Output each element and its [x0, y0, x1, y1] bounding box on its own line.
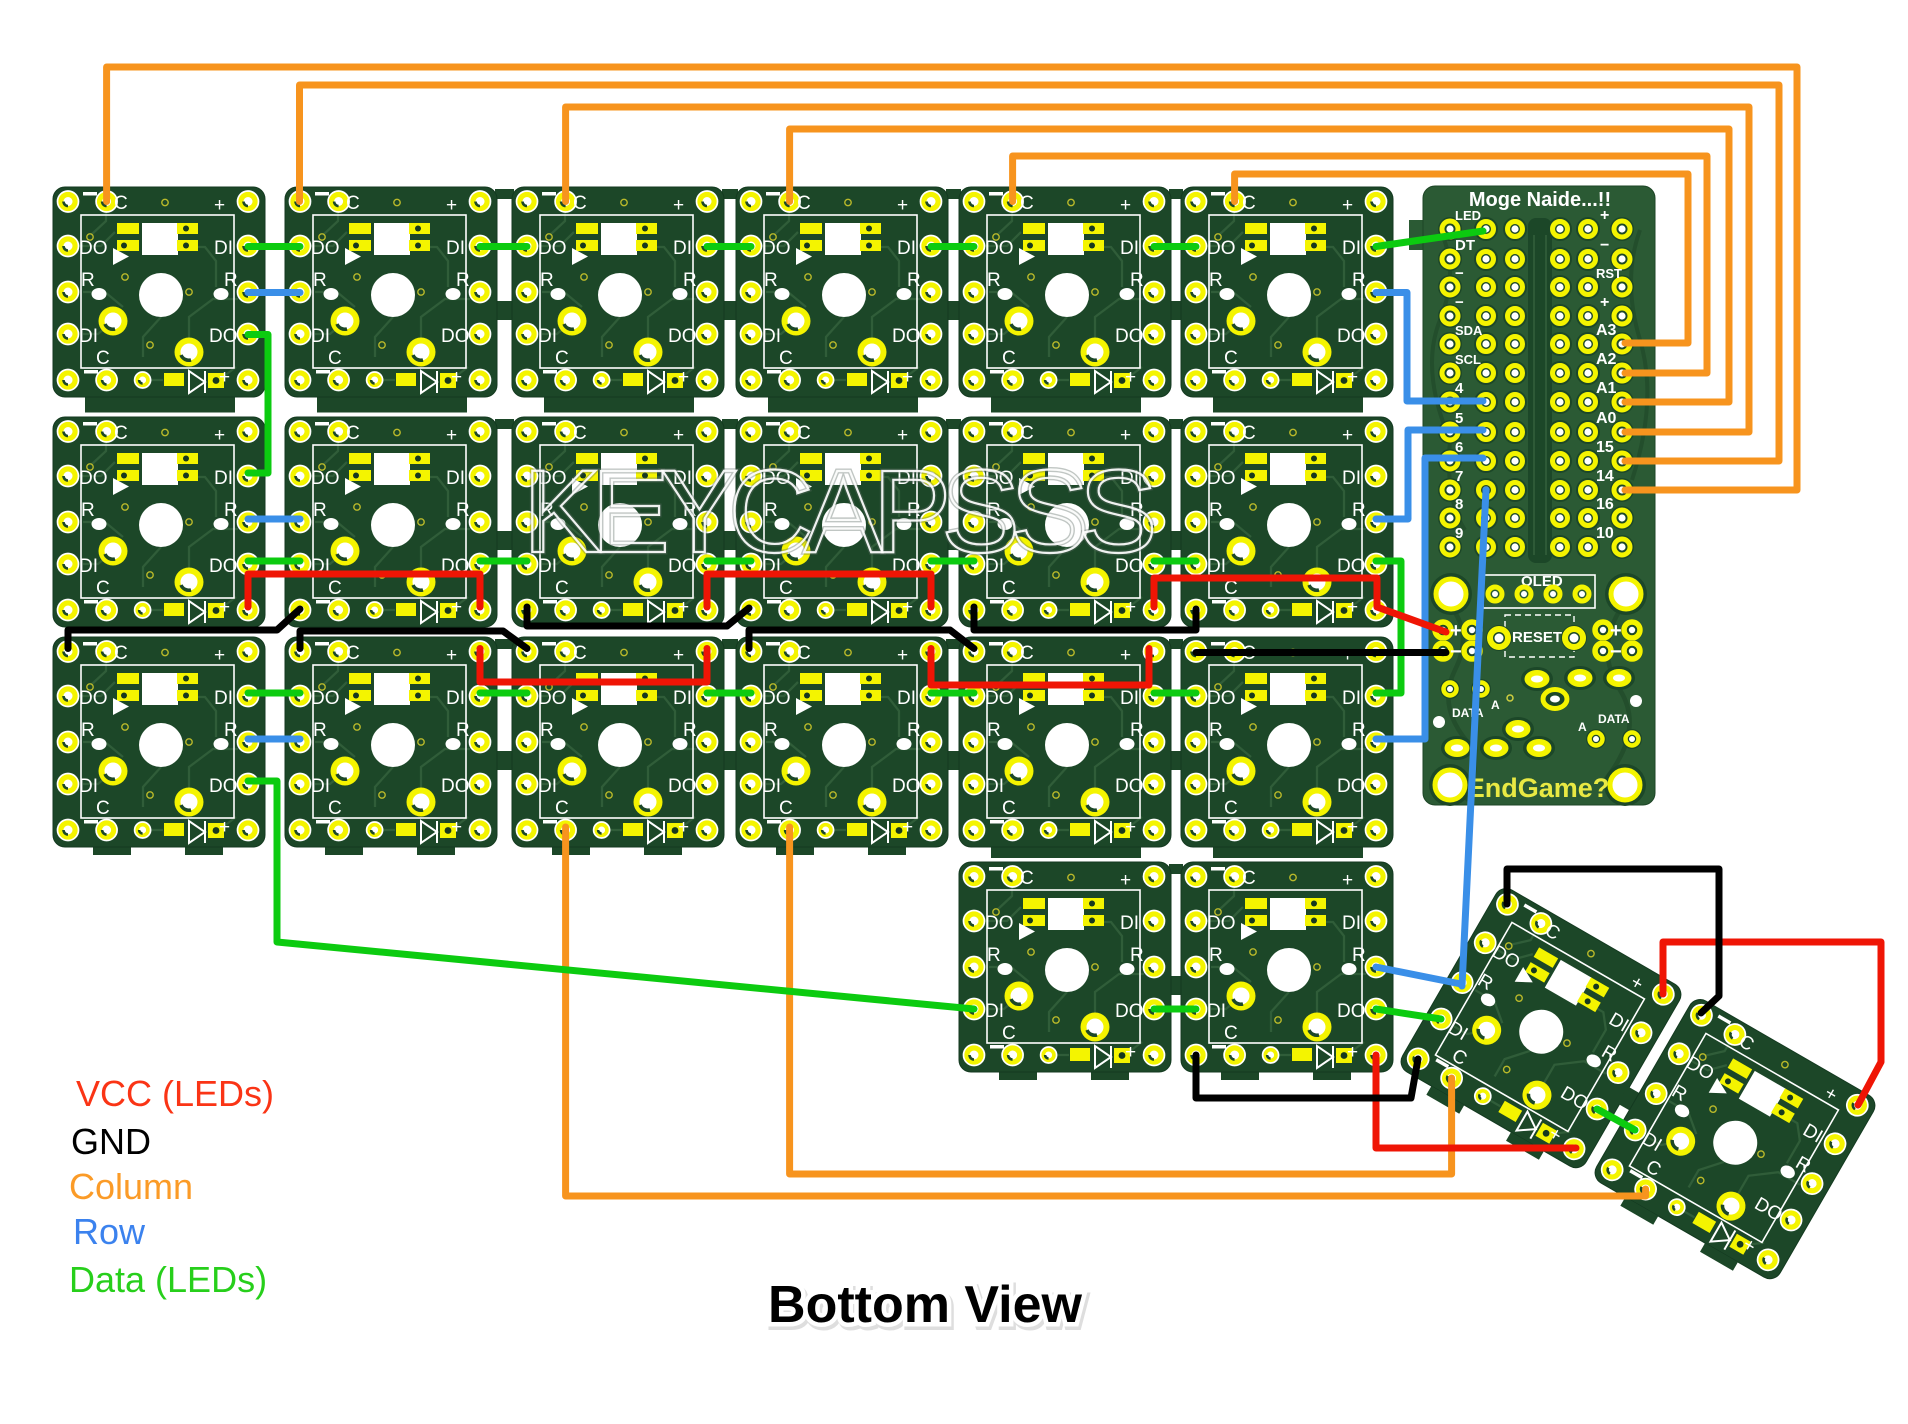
- svg-text:7: 7: [1455, 468, 1463, 485]
- svg-text:DATA: DATA: [1598, 712, 1630, 726]
- svg-text:10: 10: [1596, 525, 1614, 542]
- svg-text:Data (LEDs): Data (LEDs): [69, 1259, 267, 1300]
- svg-text:A2: A2: [1596, 351, 1617, 368]
- svg-text:8: 8: [1455, 496, 1463, 513]
- svg-text:A: A: [1491, 698, 1500, 712]
- svg-text:DATA: DATA: [1452, 706, 1484, 720]
- svg-text:SDA: SDA: [1455, 323, 1483, 338]
- svg-text:+: +: [1600, 294, 1609, 311]
- svg-text:+: +: [1600, 207, 1609, 224]
- svg-text:−: −: [1455, 265, 1464, 282]
- svg-text:5: 5: [1455, 410, 1463, 427]
- svg-text:VCC (LEDs): VCC (LEDs): [76, 1073, 274, 1114]
- svg-text:6: 6: [1455, 439, 1463, 456]
- svg-text:A0: A0: [1596, 410, 1617, 427]
- svg-text:DT: DT: [1455, 237, 1475, 254]
- svg-text:Row: Row: [73, 1211, 146, 1252]
- svg-text:RST: RST: [1596, 266, 1622, 281]
- svg-text:A1: A1: [1596, 380, 1617, 397]
- svg-text:Bottom View: Bottom View: [768, 1276, 1083, 1334]
- svg-text:9: 9: [1455, 525, 1463, 542]
- svg-text:LED: LED: [1455, 208, 1481, 223]
- svg-text:A3: A3: [1596, 322, 1617, 339]
- svg-text:EndGame?: EndGame?: [1467, 773, 1610, 803]
- svg-text:−: −: [1610, 641, 1622, 663]
- svg-text:SCL: SCL: [1455, 352, 1481, 367]
- svg-text:15: 15: [1596, 439, 1614, 456]
- svg-text:A: A: [1578, 720, 1587, 734]
- svg-text:Column: Column: [69, 1166, 193, 1207]
- svg-text:RESET: RESET: [1512, 629, 1562, 646]
- svg-text:4: 4: [1455, 380, 1464, 397]
- svg-text:+: +: [1450, 620, 1462, 642]
- svg-text:−: −: [1455, 294, 1464, 311]
- svg-text:GND: GND: [71, 1121, 151, 1162]
- svg-text:−: −: [1600, 237, 1609, 254]
- svg-text:+: +: [1610, 620, 1622, 642]
- svg-text:16: 16: [1596, 496, 1614, 513]
- svg-text:Moge Naide...!!: Moge Naide...!!: [1469, 189, 1611, 211]
- svg-text:−: −: [1450, 641, 1462, 663]
- svg-text:KEYCAPSSS: KEYCAPSSS: [523, 446, 1153, 578]
- svg-text:14: 14: [1596, 468, 1614, 485]
